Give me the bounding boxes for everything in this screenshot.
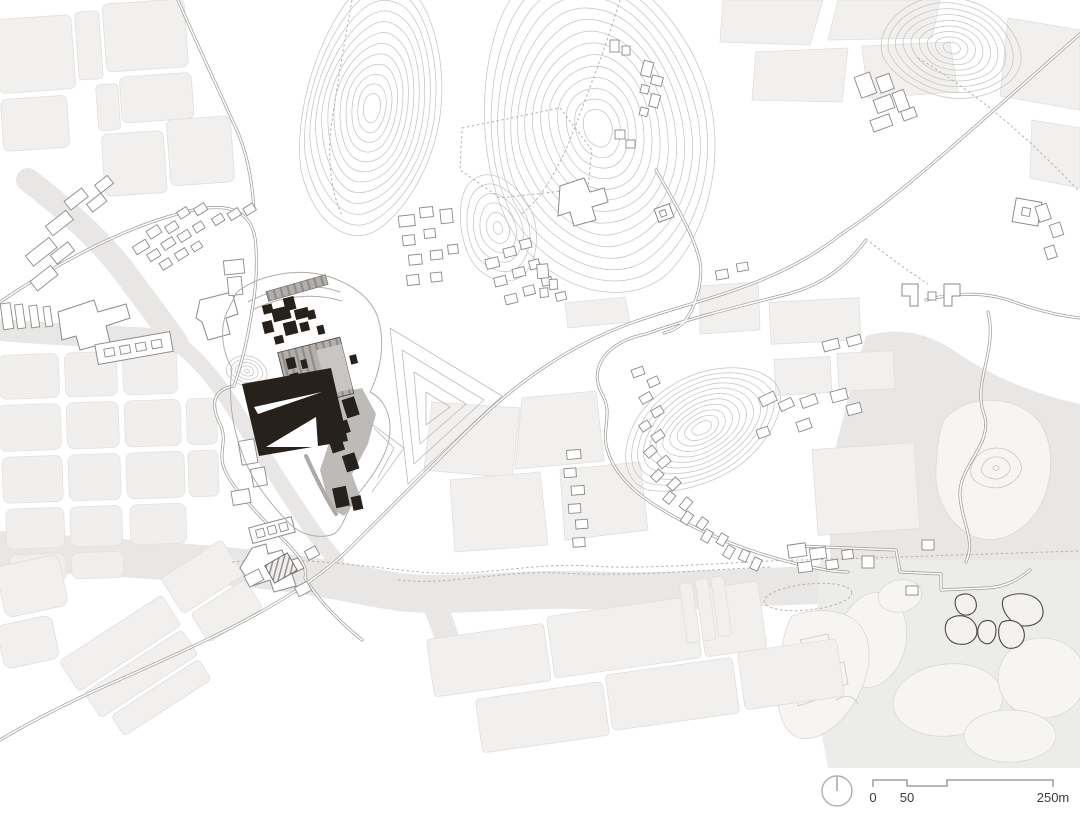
- north-arrow-icon: [822, 776, 852, 806]
- scale-label-50: 50: [900, 790, 914, 805]
- site-plan-canvas: 0 50 250m: [0, 0, 1080, 818]
- scale-label-250m: 250m: [1037, 790, 1070, 805]
- map-svg: 0 50 250m: [0, 0, 1080, 818]
- scale-label-0: 0: [869, 790, 876, 805]
